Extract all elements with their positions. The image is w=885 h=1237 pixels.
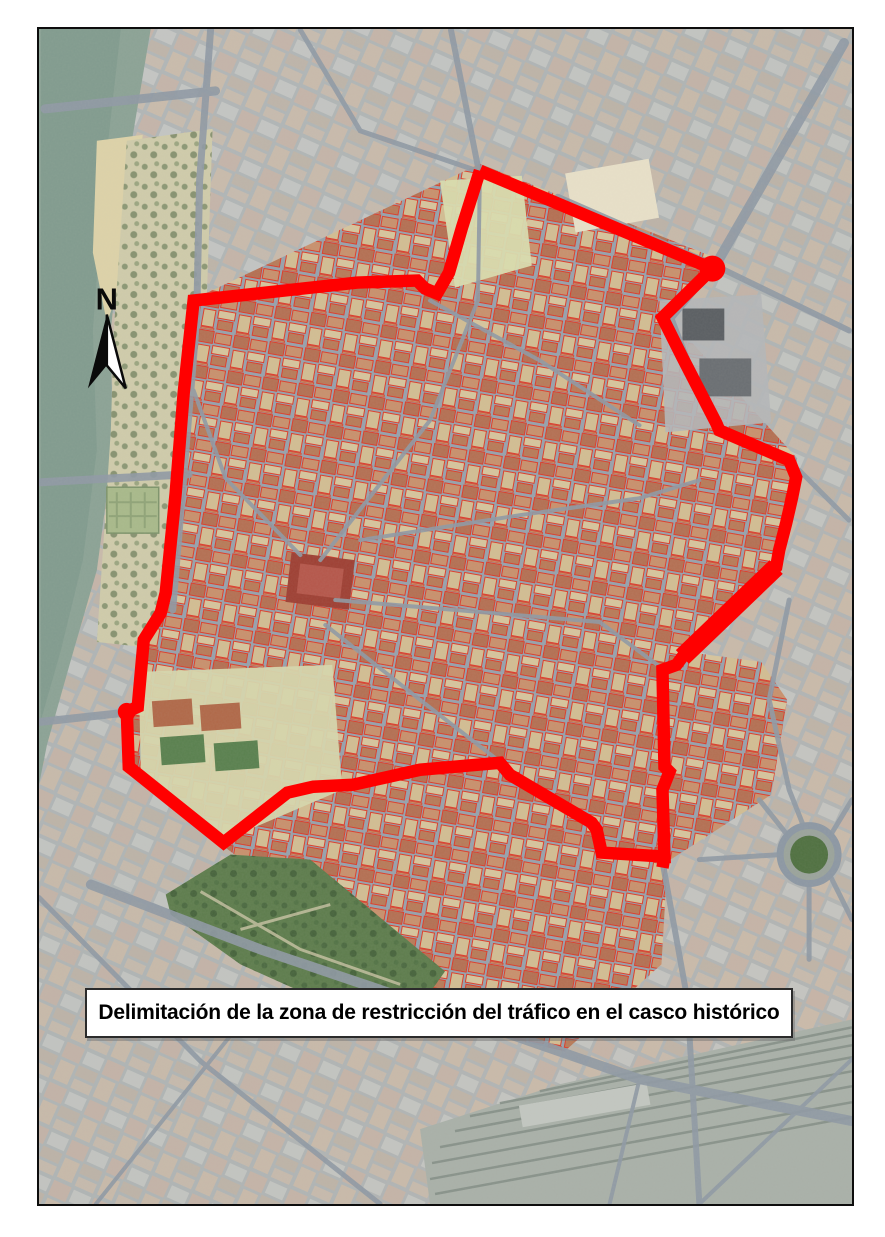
boundary-corner-node: [118, 703, 136, 721]
restriction-boundary-tail: [662, 857, 664, 868]
boundary-corner-node: [699, 256, 725, 282]
map-page: N Delimitación de la zona de restricción…: [0, 0, 885, 1237]
map-title: Delimitación de la zona de restricción d…: [98, 1001, 779, 1025]
north-label: N: [96, 282, 118, 317]
title-box: Delimitación de la zona de restricción d…: [85, 988, 793, 1038]
